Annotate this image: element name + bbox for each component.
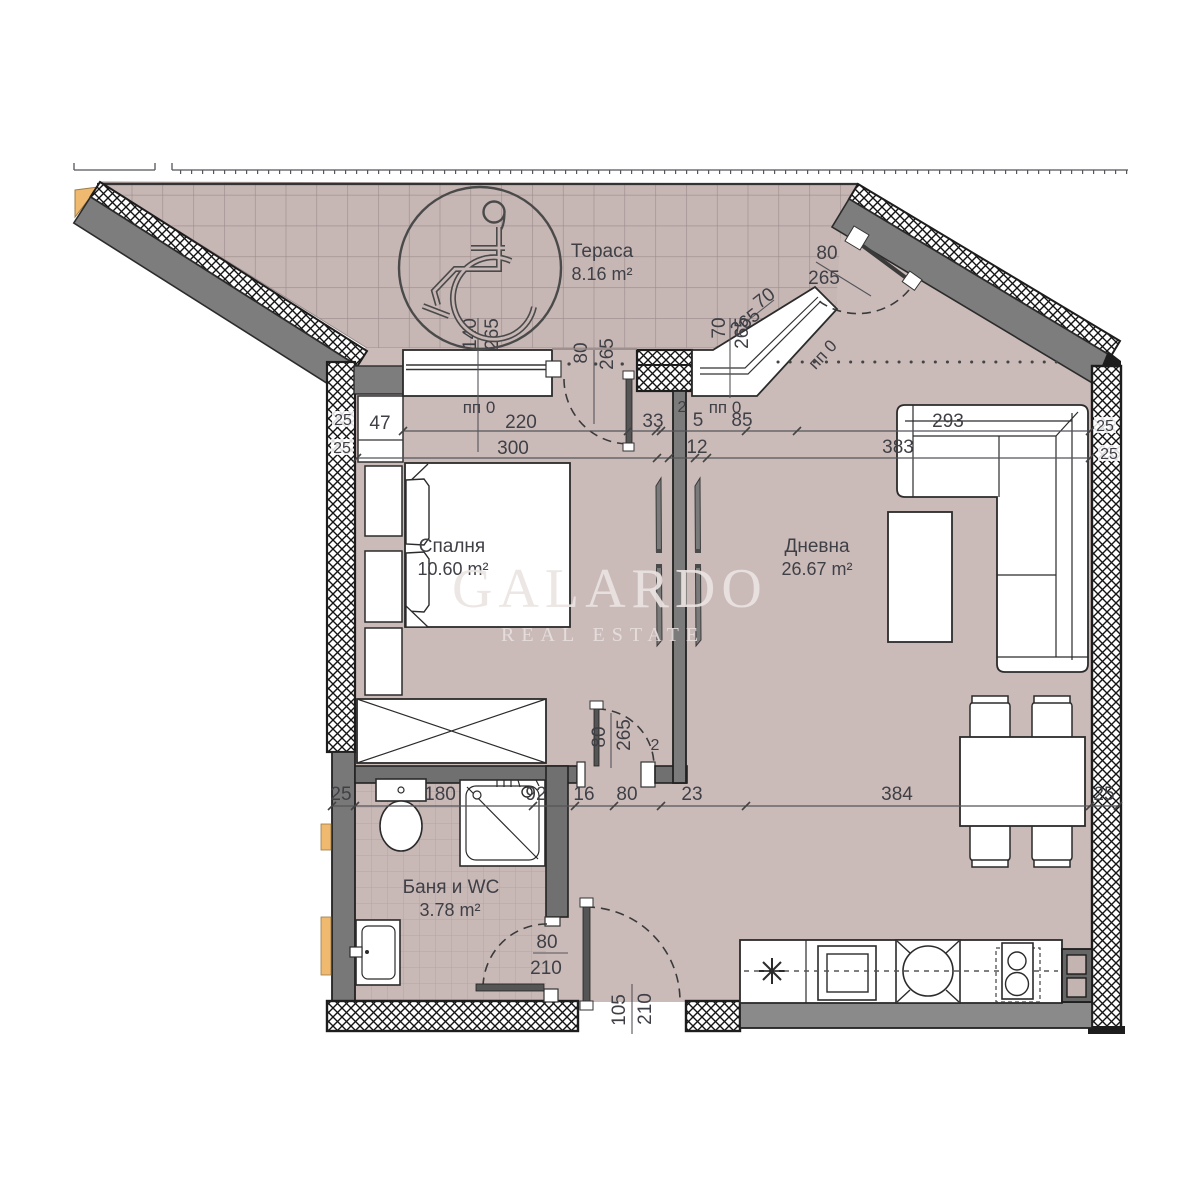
svg-text:12: 12 [686, 437, 707, 458]
svg-text:180: 180 [424, 784, 456, 805]
svg-text:Дневна: Дневна [784, 536, 850, 557]
svg-text:3.78 m²: 3.78 m² [419, 900, 480, 920]
svg-text:265: 265 [614, 719, 635, 751]
svg-text:293: 293 [932, 411, 964, 432]
svg-text:265: 265 [482, 318, 503, 350]
svg-text:210: 210 [530, 958, 562, 979]
svg-text:210: 210 [635, 993, 656, 1025]
svg-text:105: 105 [609, 994, 630, 1026]
svg-text:384: 384 [881, 784, 913, 805]
svg-text:2: 2 [651, 737, 660, 754]
svg-text:Баня и WC: Баня и WC [403, 877, 500, 898]
svg-text:25: 25 [330, 784, 351, 805]
svg-text:80: 80 [616, 784, 637, 805]
svg-text:80: 80 [589, 726, 610, 747]
svg-text:2: 2 [678, 399, 687, 416]
svg-text:300: 300 [497, 438, 529, 459]
svg-text:92: 92 [525, 784, 546, 805]
svg-text:23: 23 [681, 784, 702, 805]
svg-text:Тераса: Тераса [571, 241, 634, 262]
svg-text:25: 25 [1093, 784, 1114, 805]
svg-text:47: 47 [369, 413, 390, 434]
svg-text:REAL ESTATE: REAL ESTATE [501, 624, 705, 646]
svg-text:25: 25 [333, 440, 351, 457]
svg-text:Спалня: Спалня [419, 536, 485, 557]
svg-text:80: 80 [536, 932, 557, 953]
svg-text:пп 0: пп 0 [709, 398, 742, 417]
svg-text:220: 220 [505, 412, 537, 433]
svg-text:16: 16 [573, 784, 594, 805]
svg-text:265: 265 [808, 268, 840, 289]
svg-text:80: 80 [816, 243, 837, 264]
svg-text:383: 383 [882, 437, 914, 458]
svg-text:пп 0: пп 0 [463, 398, 496, 417]
svg-text:70: 70 [709, 317, 730, 338]
svg-text:25: 25 [1100, 446, 1118, 463]
svg-text:33: 33 [642, 411, 663, 432]
svg-text:5: 5 [693, 410, 704, 431]
svg-text:25: 25 [1096, 418, 1114, 435]
svg-text:26.67 m²: 26.67 m² [781, 559, 852, 579]
svg-text:8.16 m²: 8.16 m² [571, 264, 632, 284]
svg-text:80: 80 [571, 342, 592, 363]
svg-text:GALARDO: GALARDO [452, 558, 768, 620]
svg-text:25: 25 [334, 412, 352, 429]
svg-text:265: 265 [597, 338, 618, 370]
